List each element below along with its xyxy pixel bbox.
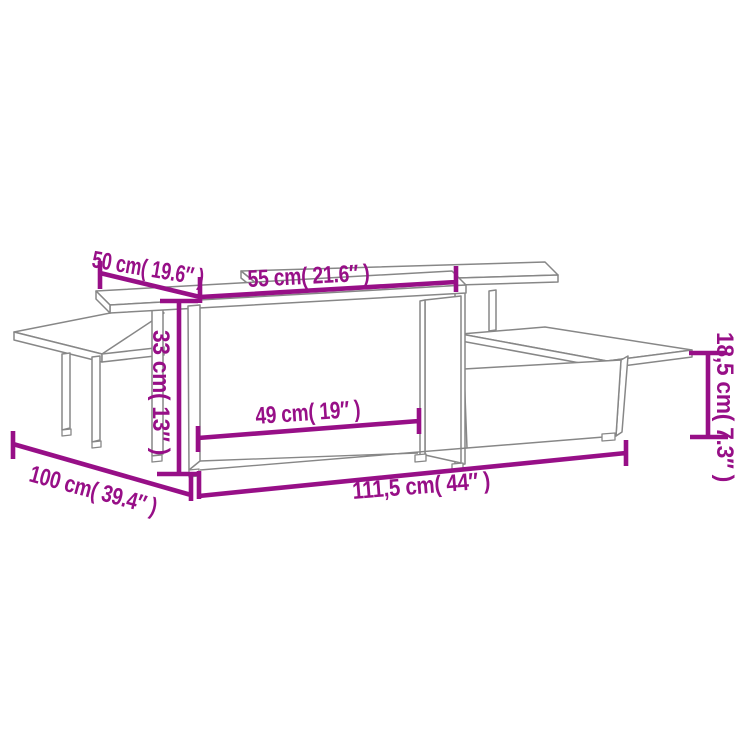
right-box-base <box>464 356 628 448</box>
main-table-front-panels <box>188 296 461 477</box>
rear-support-strut <box>489 290 496 331</box>
left-low-tabletop <box>14 306 164 362</box>
table-drawing <box>14 262 692 477</box>
dimension-18-5cm: 18,5 cm( 7.3″ ) <box>689 332 738 482</box>
dimension-111-5cm: 111,5 cm( 44″ ) <box>199 440 626 505</box>
dimension-label: 111,5 cm( 44″ ) <box>351 467 491 505</box>
left-table-legs <box>62 353 101 448</box>
dimension-label: 100 cm( 39.4″ ) <box>26 461 160 521</box>
dimension-label: 18,5 cm( 7.3″ ) <box>711 332 738 482</box>
dimension-annotations: 50 cm( 19.6″ ) 55 cm( 21.6″ ) 33 cm( 13″… <box>13 246 738 520</box>
dimension-49cm: 49 cm( 19″ ) <box>198 396 419 452</box>
product-dimension-image: 50 cm( 19.6″ ) 55 cm( 21.6″ ) 33 cm( 13″… <box>0 0 750 750</box>
furniture-dimension-diagram: 50 cm( 19.6″ ) 55 cm( 21.6″ ) 33 cm( 13″… <box>0 0 750 750</box>
dimension-label: 33 cm( 13″ ) <box>147 330 174 455</box>
